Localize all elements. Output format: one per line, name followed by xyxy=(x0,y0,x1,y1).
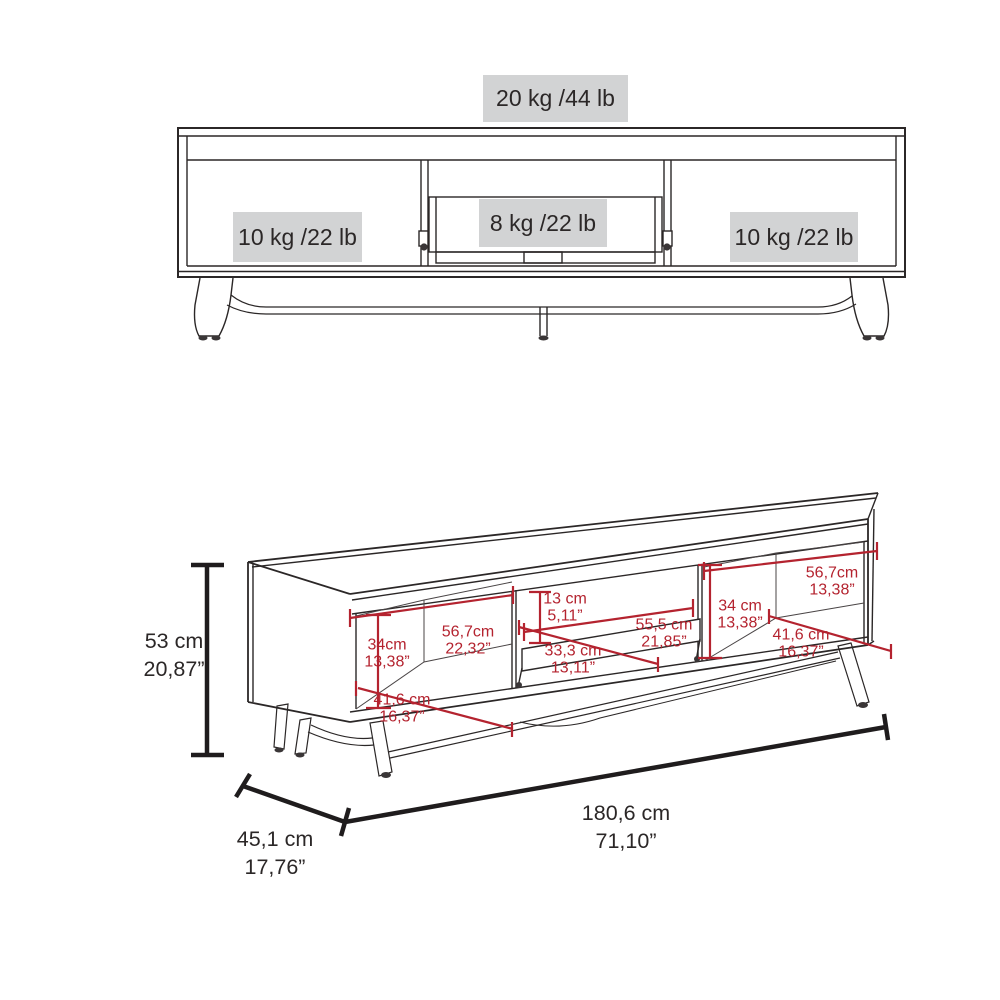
weight-badge-right: 10 kg /22 lb xyxy=(730,212,858,262)
height-dimension-label: 53 cm 20,87” xyxy=(144,627,205,683)
left-height-label: 34cm 13,38” xyxy=(364,638,409,671)
diagram-linework xyxy=(0,0,1000,1000)
weight-badge-left: 10 kg /22 lb xyxy=(233,212,362,262)
left-depth-label: 41,6 cm 16,37” xyxy=(374,693,431,726)
weight-badge-center: 8 kg /22 lb xyxy=(479,199,607,247)
right-height-label: 34 cm 13,38” xyxy=(717,599,762,632)
center-height-label: 13 cm 5,11” xyxy=(543,592,587,625)
weight-badge-top-label: 20 kg /44 lb xyxy=(496,85,615,112)
weight-badge-left-label: 10 kg /22 lb xyxy=(238,224,357,251)
depth-dimension-label: 45,1 cm 17,76” xyxy=(237,825,313,881)
left-width-label: 56,7cm 22,32” xyxy=(442,625,494,658)
diagram-canvas: 20 kg /44 lb 10 kg /22 lb 8 kg /22 lb 10… xyxy=(0,0,1000,1000)
weight-badge-right-label: 10 kg /22 lb xyxy=(735,224,854,251)
center-width-label: 55,5 cm 21,85” xyxy=(636,618,693,651)
perspective-linework xyxy=(191,493,891,836)
center-depth-label: 33,3 cm 13,11” xyxy=(545,644,602,677)
right-width-label: 56,7cm 13,38” xyxy=(806,566,858,599)
weight-badge-top: 20 kg /44 lb xyxy=(483,75,628,122)
front-legs xyxy=(195,278,889,341)
weight-badge-center-label: 8 kg /22 lb xyxy=(490,210,596,237)
right-depth-label: 41,6 cm 16,37” xyxy=(773,628,830,661)
width-dimension-label: 180,6 cm 71,10” xyxy=(582,799,670,855)
